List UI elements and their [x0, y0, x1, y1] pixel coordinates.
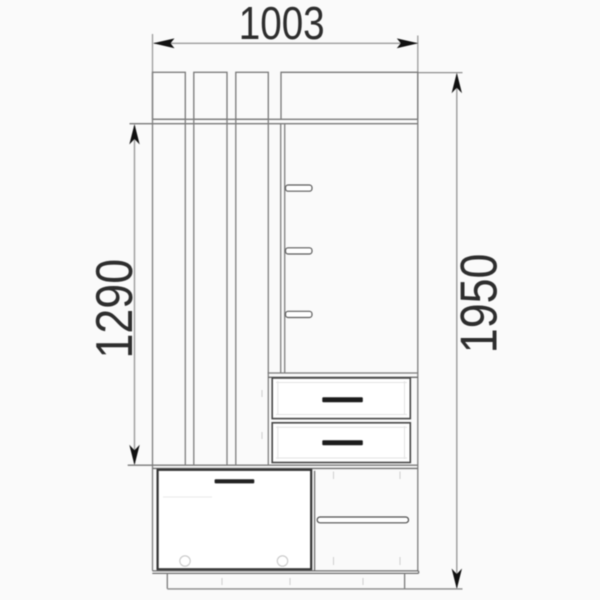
svg-text:1950: 1950 — [451, 254, 509, 354]
svg-text:1290: 1290 — [86, 259, 144, 359]
svg-text:1003: 1003 — [239, 0, 325, 49]
